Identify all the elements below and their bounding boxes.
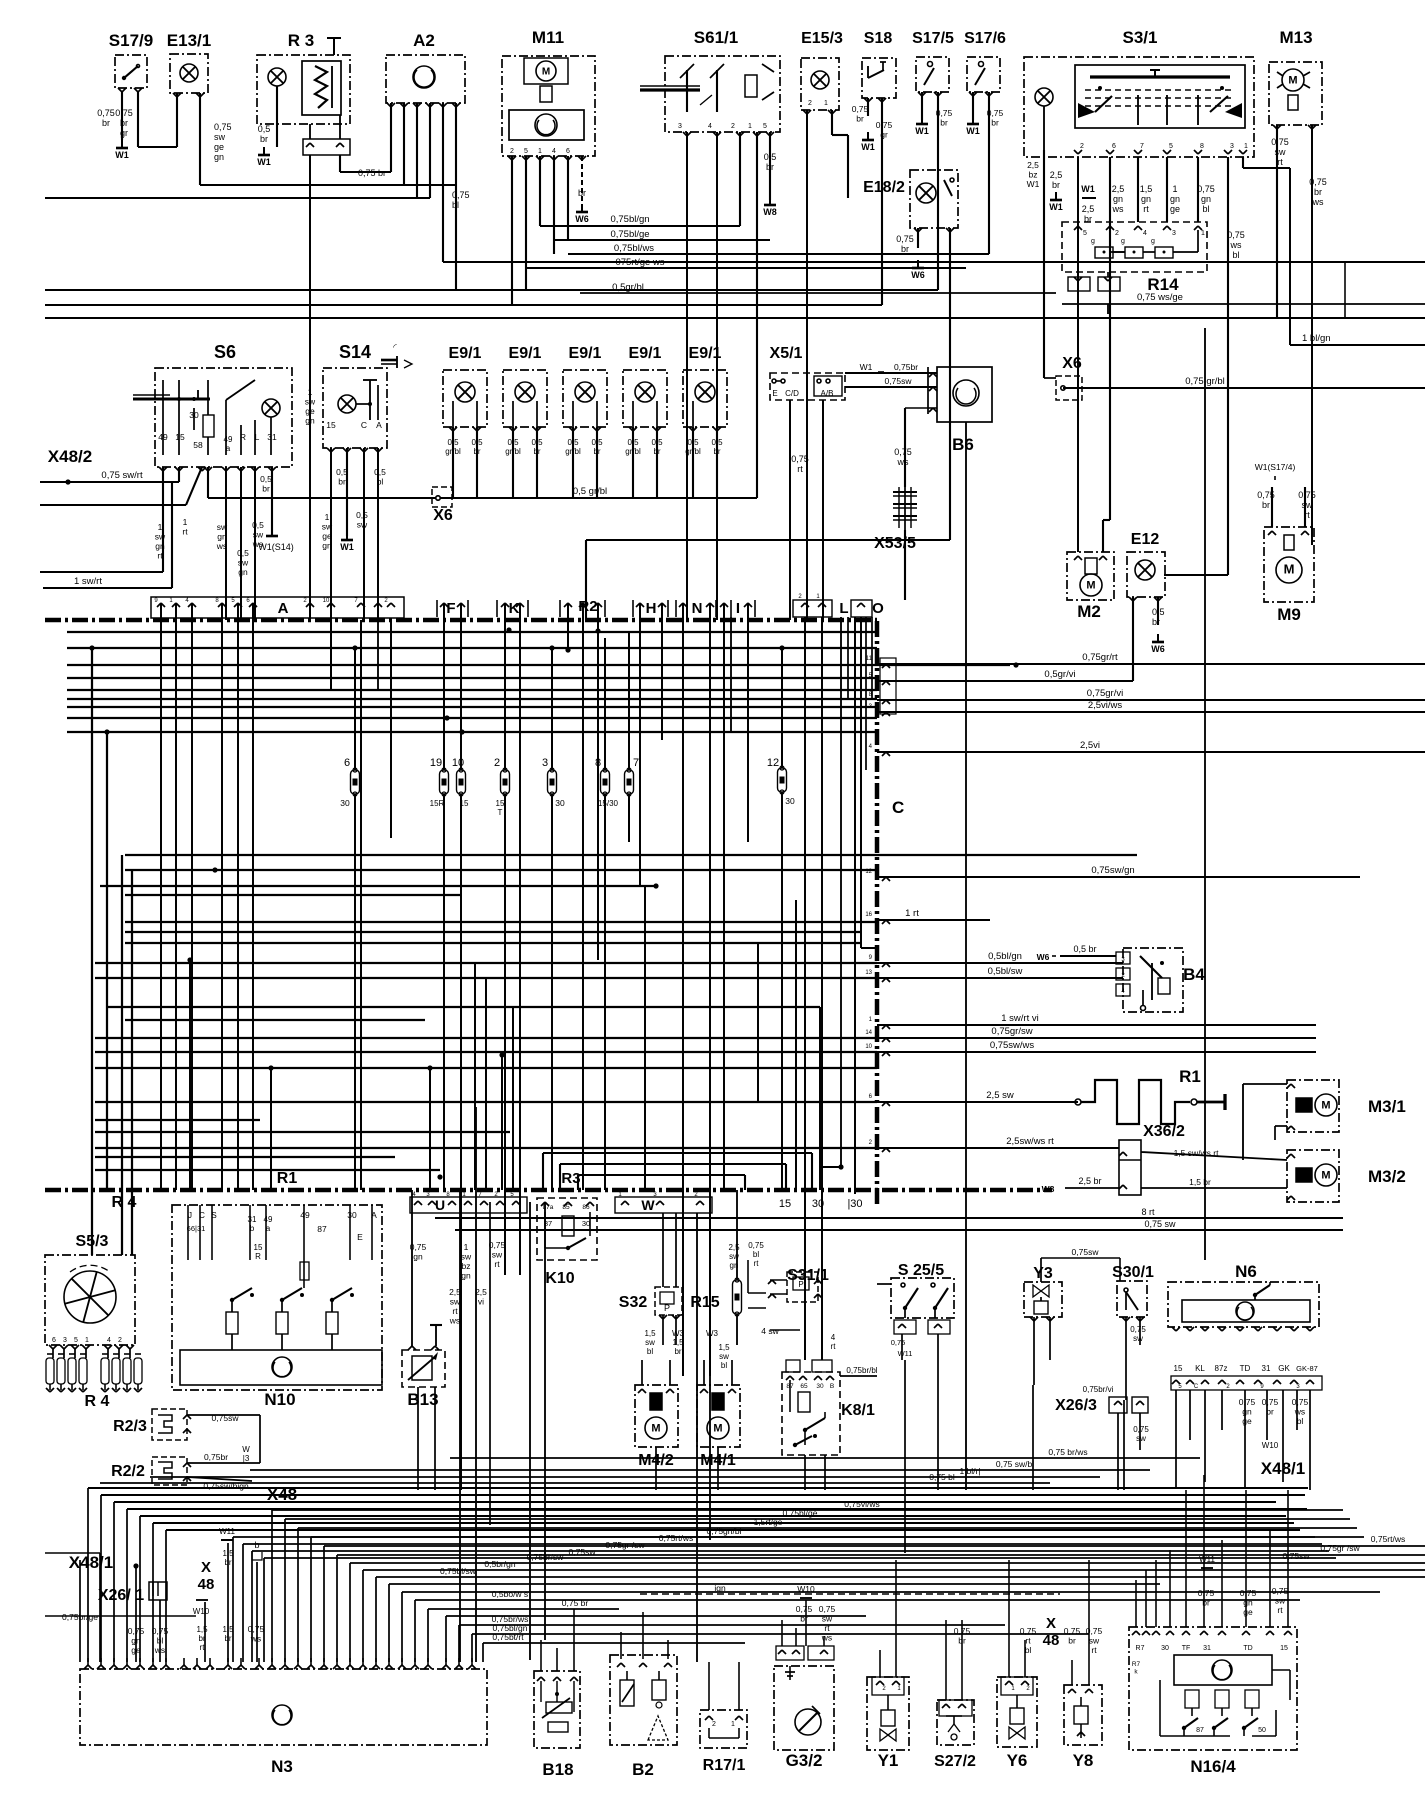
svg-text:50: 50: [1258, 1727, 1266, 1734]
svg-text:A: A: [376, 420, 382, 430]
svg-text:2: 2: [712, 1721, 716, 1728]
svg-text:S32: S32: [619, 1294, 648, 1311]
svg-text:W10: W10: [193, 1607, 210, 1616]
svg-text:0,75sw: 0,75sw: [1283, 1551, 1311, 1561]
svg-text:TD: TD: [1240, 1364, 1251, 1373]
svg-text:W11: W11: [219, 1527, 235, 1536]
svg-text:S5/3: S5/3: [76, 1233, 109, 1250]
svg-text:M11: M11: [532, 28, 564, 47]
svg-text:0,5gr/vi: 0,5gr/vi: [1044, 669, 1075, 680]
svg-text:R 3: R 3: [288, 31, 314, 50]
svg-text:L: L: [255, 432, 260, 442]
svg-text:30: 30: [189, 410, 199, 420]
svg-text:1 bl/r|: 1 bl/r|: [959, 1466, 980, 1476]
svg-text:0,75br/bl: 0,75br/bl: [846, 1366, 877, 1375]
svg-text:R17/1: R17/1: [703, 1757, 746, 1774]
svg-text:2: 2: [808, 100, 812, 107]
svg-text:2: 2: [1080, 143, 1084, 150]
svg-text:W11: W11: [898, 1349, 913, 1358]
svg-text:30: 30: [582, 1219, 590, 1228]
svg-text:N: N: [692, 600, 703, 617]
svg-text:0,75bl/gn: 0,75bl/gn: [610, 214, 649, 225]
svg-text:S17/5: S17/5: [912, 30, 954, 47]
svg-text:g: g: [1121, 238, 1125, 245]
svg-text:W10: W10: [797, 1584, 815, 1594]
svg-text:X48/1: X48/1: [69, 1553, 113, 1572]
svg-text:X36/2: X36/2: [1143, 1123, 1185, 1140]
svg-text:B6: B6: [952, 435, 974, 454]
svg-text:13: 13: [865, 970, 872, 976]
svg-text:1,5rt/ge: 1,5rt/ge: [754, 1517, 783, 1527]
svg-text:1: 1: [538, 148, 542, 155]
svg-text:N16/4: N16/4: [1190, 1757, 1236, 1776]
svg-text:0,75gr/vi: 0,75gr/vi: [1087, 688, 1123, 699]
svg-text:H: H: [646, 600, 657, 617]
svg-text:0,75bl/ge: 0,75bl/ge: [783, 1508, 818, 1518]
svg-text:B18: B18: [542, 1760, 573, 1779]
svg-text:15: 15: [779, 1198, 791, 1210]
svg-text:GK: GK: [1278, 1364, 1290, 1373]
svg-text:F: F: [446, 600, 455, 617]
svg-text:W1(S14): W1(S14): [258, 542, 294, 552]
svg-text:1: 1: [748, 123, 752, 130]
svg-text:W1: W1: [115, 150, 129, 160]
svg-text:16: 16: [865, 912, 872, 918]
svg-text:W|3: W|3: [242, 1445, 250, 1463]
svg-text:Y3: Y3: [1033, 1265, 1053, 1282]
svg-text:0,75bt/rt: 0,75bt/rt: [492, 1632, 524, 1642]
svg-text:0,5br/gn: 0,5br/gn: [484, 1559, 515, 1569]
svg-text:1: 1: [85, 1337, 89, 1344]
svg-text:49: 49: [158, 432, 168, 442]
svg-text:R2/3: R2/3: [113, 1418, 147, 1435]
svg-text:0,75sw: 0,75sw: [1072, 1247, 1100, 1257]
svg-text:14: 14: [865, 1030, 872, 1036]
svg-text:6: 6: [52, 1337, 56, 1344]
svg-text:5: 5: [1169, 143, 1173, 150]
svg-text:15/30: 15/30: [598, 799, 619, 808]
svg-text:2,5sw/ws rt: 2,5sw/ws rt: [1006, 1136, 1054, 1147]
svg-text:1 sw/rt vi: 1 sw/rt vi: [1001, 1013, 1038, 1024]
svg-text:3: 3: [63, 1337, 67, 1344]
svg-text:W: W: [641, 1197, 655, 1213]
svg-text:12: 12: [767, 757, 779, 769]
svg-text:E9/1: E9/1: [449, 345, 482, 362]
svg-text:R1: R1: [277, 1170, 298, 1187]
svg-text:swgnws: swgnws: [216, 522, 228, 551]
svg-text:|30: |30: [847, 1198, 862, 1210]
svg-text:8: 8: [595, 757, 601, 769]
svg-text:0,75bl/ge: 0,75bl/ge: [610, 229, 649, 240]
svg-text:K: K: [509, 600, 520, 617]
svg-text:X53/5: X53/5: [874, 535, 916, 552]
svg-text:TF: TF: [1182, 1645, 1191, 1652]
svg-text:0,75 br: 0,75 br: [358, 168, 386, 178]
svg-text:5: 5: [74, 1337, 78, 1344]
svg-text:3: 3: [542, 757, 548, 769]
svg-text:S61/1: S61/1: [694, 28, 738, 47]
svg-text:2,5vi/ws: 2,5vi/ws: [1088, 700, 1123, 711]
svg-text:E: E: [357, 1232, 363, 1242]
svg-text:G3/2: G3/2: [786, 1751, 823, 1770]
svg-text:0,75bl/ws: 0,75bl/ws: [614, 243, 654, 254]
svg-text:1,5 br: 1,5 br: [1189, 1177, 1211, 1187]
svg-text:10: 10: [452, 757, 464, 769]
svg-text:0,5swgn: 0,5swgn: [237, 548, 249, 577]
svg-text:W1: W1: [1081, 184, 1095, 194]
svg-text:B2: B2: [632, 1760, 654, 1779]
svg-text:S17/6: S17/6: [964, 30, 1006, 47]
svg-text:M: M: [1284, 562, 1295, 577]
svg-text:0,75 br: 0,75 br: [562, 1598, 589, 1608]
svg-text:3: 3: [1230, 143, 1234, 150]
svg-text:1: 1: [731, 1721, 735, 1728]
svg-text:1: 1: [1244, 143, 1248, 150]
svg-text:1 rt: 1 rt: [905, 908, 919, 919]
svg-text:0,75br: 0,75br: [894, 362, 918, 372]
svg-text:0,5sw: 0,5sw: [356, 510, 368, 530]
svg-text:6: 6: [1112, 143, 1116, 150]
svg-text:C: C: [892, 798, 904, 817]
svg-text:0,5bl/sw: 0,5bl/sw: [988, 966, 1023, 977]
svg-text:K10: K10: [545, 1270, 574, 1287]
svg-text:0,75 bl: 0,75 bl: [929, 1472, 955, 1482]
svg-text:O: O: [872, 600, 884, 617]
svg-text:E9/1: E9/1: [689, 345, 722, 362]
svg-text:W1: W1: [861, 142, 875, 152]
svg-text:66|31: 66|31: [187, 1224, 206, 1233]
svg-text:S6: S6: [214, 342, 236, 362]
svg-text:30: 30: [785, 796, 795, 806]
svg-text:◜: ◜: [393, 342, 397, 352]
svg-text:X48: X48: [267, 1485, 297, 1504]
svg-text:4 sw: 4 sw: [761, 1326, 779, 1336]
svg-text:B13: B13: [407, 1390, 438, 1409]
svg-text:0,75sw/bign: 0,75sw/bign: [203, 1481, 249, 1491]
svg-text:0,5bl/gn: 0,5bl/gn: [988, 951, 1022, 962]
svg-text:M: M: [1321, 1100, 1330, 1112]
svg-text:15R: 15R: [430, 799, 445, 808]
svg-text:2: 2: [1115, 230, 1119, 237]
svg-text:1: 1: [1201, 230, 1205, 237]
svg-text:N3: N3: [271, 1757, 293, 1776]
svg-text:12: 12: [865, 869, 872, 875]
svg-text:11: 11: [866, 656, 873, 662]
svg-text:N6: N6: [1235, 1262, 1257, 1281]
svg-text:Y6: Y6: [1007, 1751, 1028, 1770]
svg-text:E12: E12: [1131, 531, 1160, 548]
svg-text:N10: N10: [264, 1390, 295, 1409]
svg-text:E9/1: E9/1: [509, 345, 542, 362]
svg-text:5: 5: [1083, 230, 1087, 237]
svg-text:S 25/5: S 25/5: [898, 1262, 944, 1279]
svg-text:R2/2: R2/2: [111, 1463, 145, 1480]
svg-text:M3/2: M3/2: [1368, 1167, 1406, 1186]
svg-text:30: 30: [1161, 1645, 1169, 1652]
svg-text:X26/ 1: X26/ 1: [98, 1587, 144, 1604]
svg-text:M: M: [713, 1423, 722, 1435]
svg-text:TD: TD: [1243, 1645, 1252, 1652]
svg-text:87: 87: [317, 1224, 327, 1234]
svg-text:0,75 sw/rt: 0,75 sw/rt: [101, 470, 143, 481]
svg-text:A2: A2: [413, 31, 435, 50]
svg-text:B4: B4: [1183, 965, 1205, 984]
svg-text:0,75br: 0,75br: [204, 1452, 228, 1462]
svg-text:U: U: [435, 1197, 445, 1213]
svg-text:0,75sw: 0,75sw: [212, 1413, 240, 1423]
svg-text:4: 4: [1143, 230, 1147, 237]
svg-text:30: 30: [347, 1210, 357, 1220]
svg-text:1,5 sw/ws rt: 1,5 sw/ws rt: [1174, 1148, 1220, 1158]
svg-text:6: 6: [566, 148, 570, 155]
svg-text:S17/9: S17/9: [109, 31, 153, 50]
svg-text:R: R: [240, 432, 246, 442]
svg-text:A: A: [278, 600, 289, 617]
svg-text:10: 10: [865, 1044, 872, 1050]
svg-text:K8/1: K8/1: [841, 1402, 875, 1419]
svg-text:R15: R15: [690, 1294, 719, 1311]
svg-text:0,75: 0,75: [891, 1338, 906, 1347]
svg-text:1 sw/rt: 1 sw/rt: [74, 576, 102, 587]
svg-text:B: B: [830, 1383, 834, 1390]
svg-text:49: 49: [300, 1210, 310, 1220]
svg-text:br: br: [578, 188, 586, 198]
svg-text:7: 7: [633, 757, 639, 769]
svg-text:15: 15: [1280, 1645, 1288, 1652]
svg-text:0,75sw: 0,75sw: [885, 376, 913, 386]
svg-text:0,5bo/w s: 0,5bo/w s: [492, 1589, 528, 1599]
svg-text:85: 85: [562, 1204, 570, 1211]
svg-text:8 rt: 8 rt: [1141, 1207, 1155, 1217]
svg-text:E15/3: E15/3: [801, 30, 843, 47]
svg-text:W10: W10: [1262, 1441, 1279, 1450]
svg-text:X48/1: X48/1: [1261, 1459, 1305, 1478]
svg-text:2: 2: [494, 757, 500, 769]
svg-text:E9/1: E9/1: [629, 345, 662, 362]
svg-text:15: 15: [175, 432, 185, 442]
svg-text:1rt: 1rt: [182, 517, 188, 537]
svg-text:W1: W1: [860, 362, 873, 372]
svg-text:S14: S14: [339, 342, 371, 362]
svg-text:2,5gnws: 2,5gnws: [1112, 184, 1125, 214]
svg-text:2,5vi: 2,5vi: [1080, 740, 1100, 751]
svg-text:I: I: [736, 600, 740, 617]
svg-text:M: M: [651, 1423, 660, 1435]
svg-text:0,75gr /sw: 0,75gr /sw: [1320, 1543, 1360, 1553]
svg-text:C/D: C/D: [785, 389, 799, 398]
svg-text:4: 4: [708, 123, 712, 130]
svg-text:31: 31: [1203, 1645, 1211, 1652]
svg-text:b: b: [254, 1540, 259, 1550]
svg-text:65: 65: [800, 1383, 808, 1390]
svg-text:W1: W1: [966, 126, 980, 136]
svg-text:M: M: [1086, 580, 1095, 592]
svg-text:W3: W3: [706, 1329, 719, 1338]
svg-text:S18: S18: [864, 30, 893, 47]
svg-text:4: 4: [552, 148, 556, 155]
svg-text:Y1: Y1: [878, 1751, 899, 1770]
svg-text:0,5 br: 0,5 br: [1073, 944, 1096, 954]
svg-text:0,75rt/ws: 0,75rt/ws: [1371, 1534, 1406, 1544]
svg-text:C: C: [361, 420, 367, 430]
svg-text:W1: W1: [340, 542, 354, 552]
svg-text:0,5 gr/bl: 0,5 gr/bl: [573, 486, 607, 497]
svg-text:5: 5: [763, 123, 767, 130]
svg-text:S3/1: S3/1: [1123, 28, 1158, 47]
svg-text:4: 4: [107, 1337, 111, 1344]
svg-text:19: 19: [430, 757, 442, 769]
svg-text:E: E: [772, 389, 777, 398]
svg-text:R7: R7: [1136, 1645, 1145, 1652]
svg-text:5: 5: [524, 148, 528, 155]
svg-text:W6: W6: [1037, 952, 1050, 962]
svg-text:S30/1: S30/1: [1112, 1264, 1154, 1281]
svg-text:R 4: R 4: [85, 1393, 110, 1410]
svg-text:W6: W6: [911, 270, 925, 280]
svg-text:2,5 sw: 2,5 sw: [986, 1090, 1014, 1101]
svg-text:g: g: [1091, 238, 1095, 245]
svg-text:E18/2: E18/2: [863, 179, 905, 196]
svg-text:0,75vi/ws: 0,75vi/ws: [844, 1499, 879, 1509]
svg-text:0,75gr/rt: 0,75gr/rt: [1082, 652, 1118, 663]
svg-text:W11: W11: [1199, 1555, 1215, 1564]
svg-text:0,5gr/bl: 0,5gr/bl: [612, 282, 644, 293]
svg-text:R1: R1: [1179, 1067, 1201, 1086]
svg-text:M: M: [542, 67, 550, 78]
svg-text:W1: W1: [257, 157, 271, 167]
svg-text:0,75gr /sw: 0,75gr /sw: [605, 1540, 645, 1550]
svg-text:0,75br/vi: 0,75br/vi: [1083, 1385, 1114, 1394]
svg-text:W8: W8: [763, 207, 777, 217]
svg-text:M: M: [1321, 1170, 1330, 1182]
svg-text:S27/2: S27/2: [934, 1753, 976, 1770]
svg-text:W1: W1: [1049, 202, 1063, 212]
svg-text:3: 3: [1172, 230, 1176, 237]
svg-text:C: C: [1194, 1384, 1199, 1390]
svg-text:M13: M13: [1279, 28, 1312, 47]
svg-text:0,75 br/ws: 0,75 br/ws: [1048, 1447, 1087, 1457]
svg-text:M: M: [1288, 75, 1297, 87]
svg-text:0,75sw/ws: 0,75sw/ws: [990, 1040, 1035, 1051]
svg-text:2: 2: [510, 148, 514, 155]
svg-text:X48/2: X48/2: [48, 447, 92, 466]
svg-text:L: L: [839, 600, 848, 617]
svg-text:31: 31: [267, 432, 277, 442]
svg-text:2: 2: [731, 123, 735, 130]
svg-text:0,75 sw: 0,75 sw: [1144, 1219, 1176, 1229]
svg-text:X6: X6: [433, 507, 453, 524]
svg-text:W6: W6: [575, 214, 589, 224]
svg-text:X26/3: X26/3: [1055, 1397, 1097, 1414]
svg-text:0,75sw/gn: 0,75sw/gn: [1091, 865, 1134, 876]
svg-text:1: 1: [824, 100, 828, 107]
svg-text:E9/1: E9/1: [569, 345, 602, 362]
svg-text:M3/1: M3/1: [1368, 1097, 1406, 1116]
svg-text:30: 30: [816, 1383, 824, 1390]
svg-text:M9: M9: [1277, 605, 1301, 624]
svg-text:X6: X6: [1062, 355, 1082, 372]
svg-text:2,5 br: 2,5 br: [1078, 1176, 1101, 1186]
svg-text:3: 3: [678, 123, 682, 130]
svg-text:g: g: [1151, 238, 1155, 245]
svg-text:0,75gr/sw: 0,75gr/sw: [991, 1026, 1032, 1037]
svg-text:15: 15: [1174, 1364, 1183, 1373]
svg-text:X5/1: X5/1: [770, 345, 803, 362]
svg-text:8: 8: [1200, 143, 1204, 150]
svg-text:31: 31: [1262, 1364, 1271, 1373]
svg-text:87: 87: [1196, 1727, 1204, 1734]
svg-text:W6: W6: [1151, 644, 1165, 654]
svg-text:W1: W1: [915, 126, 929, 136]
svg-text:6: 6: [344, 757, 350, 769]
svg-text:0,75 sw/bl: 0,75 sw/bl: [996, 1459, 1034, 1469]
svg-text:P: P: [798, 1280, 803, 1289]
svg-text:7: 7: [1140, 143, 1144, 150]
svg-text:R3: R3: [561, 1170, 580, 1187]
svg-text:W1(S17/4): W1(S17/4): [1255, 462, 1296, 472]
svg-text:15: 15: [326, 420, 336, 430]
svg-text:30: 30: [340, 798, 350, 808]
svg-text:ign: ign: [714, 1583, 726, 1593]
svg-text:Y8: Y8: [1073, 1751, 1094, 1770]
svg-text:1 bl/gn: 1 bl/gn: [1302, 333, 1331, 344]
svg-text:2: 2: [118, 1337, 122, 1344]
svg-text:E13/1: E13/1: [167, 31, 211, 50]
svg-text:R 4: R 4: [112, 1194, 137, 1211]
svg-text:M2: M2: [1077, 602, 1101, 621]
svg-text:KL: KL: [1195, 1364, 1205, 1373]
svg-text:10: 10: [323, 598, 330, 604]
svg-text:87z: 87z: [1215, 1364, 1228, 1373]
svg-text:0,75rt/ws: 0,75rt/ws: [659, 1533, 694, 1543]
svg-text:0,75bl/sw: 0,75bl/sw: [440, 1566, 477, 1576]
svg-text:0,75 ws/ge: 0,75 ws/ge: [1137, 292, 1183, 303]
svg-text:58: 58: [193, 440, 203, 450]
svg-text:2,5swgn: 2,5swgn: [728, 1243, 740, 1270]
svg-text:A/B: A/B: [821, 389, 834, 398]
svg-text:GK-87: GK-87: [1296, 1364, 1318, 1373]
svg-text:P: P: [664, 1303, 670, 1313]
svg-text:30: 30: [555, 798, 565, 808]
svg-text:30: 30: [812, 1198, 824, 1210]
